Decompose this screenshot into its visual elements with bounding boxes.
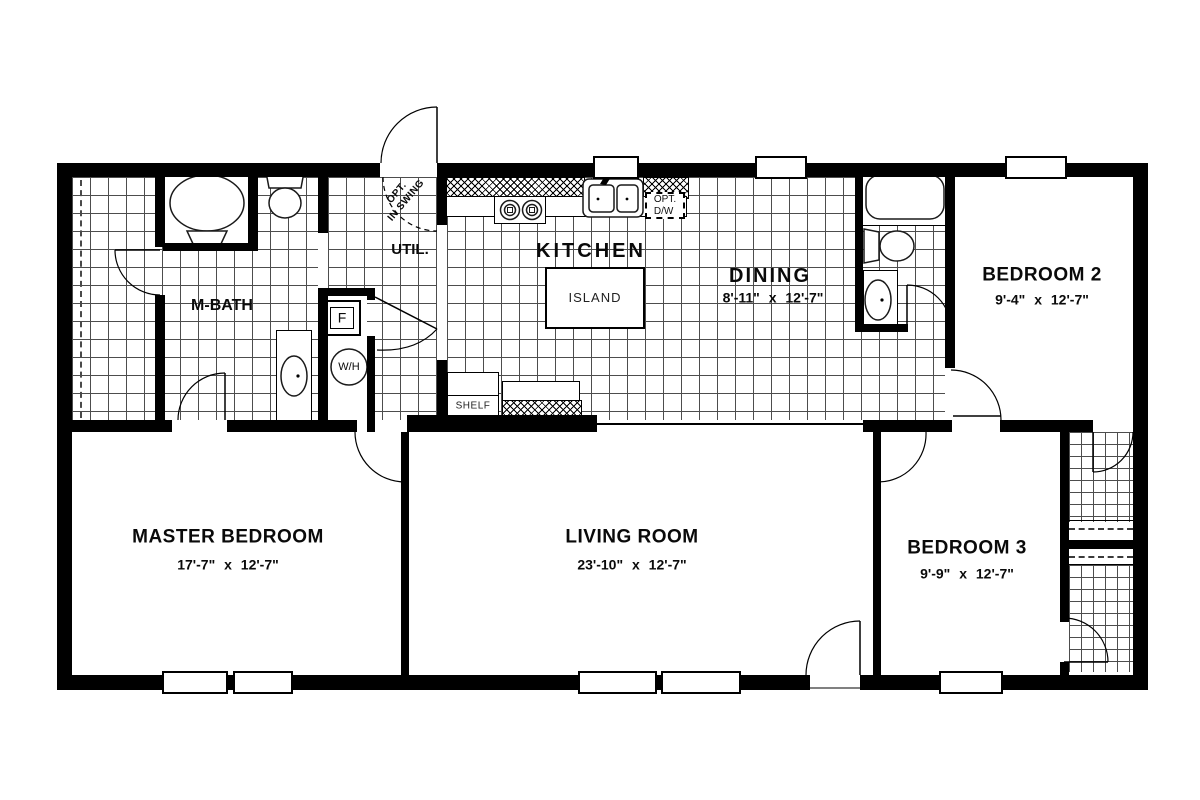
opt-dishwasher-box: OPT. D/W (645, 192, 685, 219)
room-label-dining: DINING (729, 265, 811, 287)
floor-closet-top (1069, 432, 1133, 522)
wall-interior (367, 336, 375, 432)
wall-interior (163, 243, 258, 251)
furnace-label: F (338, 310, 347, 325)
shelf-unit-top (447, 372, 499, 396)
window (1005, 156, 1067, 179)
wall-interior (437, 360, 447, 432)
wall-exterior-right (1133, 163, 1148, 690)
closet-shelf-dashed (1069, 528, 1133, 530)
door-swing-entry (806, 621, 860, 688)
floor-closet-bottom (1069, 565, 1133, 672)
wall-interior (1060, 540, 1133, 549)
range-cooktop (494, 196, 546, 224)
window (593, 156, 639, 179)
wall-interior (407, 415, 597, 432)
opt-dw-label-line2: D/W (654, 206, 676, 218)
floor-plan: OPT. D/W (0, 0, 1200, 800)
wall-interior (437, 163, 447, 225)
wall-interior (873, 432, 881, 675)
island-label: ISLAND (569, 291, 622, 305)
room-label-utility: UTIL. (391, 242, 429, 259)
wall-interior (863, 420, 952, 432)
mbath-vanity (276, 330, 312, 422)
wall-interior (1000, 420, 1093, 432)
shelf-label: SHELF (456, 401, 491, 412)
bath2-tub-platform (863, 170, 945, 226)
wall-exterior-top (57, 163, 380, 177)
bath2-vanity (863, 270, 898, 332)
opt-dw-label-line1: OPT. (654, 194, 676, 206)
wall-interior (227, 420, 357, 432)
wall-interior (155, 163, 165, 247)
wall-interior (401, 432, 409, 675)
door-swing-bedroom3 (878, 432, 926, 482)
window (755, 156, 807, 179)
room-dims-dining: 8'-11" x 12'-7" (723, 290, 824, 305)
room-dims-bedroom2: 9'-4" x 12'-7" (995, 292, 1089, 307)
wall-interior (945, 163, 955, 368)
tub-alcove (163, 168, 248, 245)
closet-shelf-edge (1069, 564, 1133, 565)
door-swing-master-bedroom (355, 432, 405, 482)
kitchen-south-counter (502, 381, 580, 401)
room-label-bedroom3: BEDROOM 3 (907, 539, 1027, 560)
closet-shelf-edge (1069, 520, 1133, 521)
door-swing-bedroom2 (951, 370, 1001, 420)
walkin-closet-rod-line (80, 180, 82, 418)
wall-interior (367, 288, 375, 300)
room-label-bedroom2: BEDROOM 2 (982, 266, 1102, 287)
wall-interior (855, 163, 863, 332)
room-dims-living-room: 23'-10" x 12'-7" (577, 557, 686, 572)
wall-interior (1060, 432, 1069, 622)
window (233, 671, 293, 694)
water-heater-label: W/H (338, 361, 359, 373)
wall-interior (318, 288, 328, 432)
window (162, 671, 228, 694)
floor-edge-open (597, 423, 863, 425)
wall-interior (1060, 662, 1069, 675)
window (939, 671, 1003, 694)
wall-interior (248, 163, 258, 250)
wall-interior (863, 324, 908, 332)
room-label-master-bedroom: MASTER BEDROOM (132, 528, 324, 549)
wall-interior (155, 295, 165, 432)
room-dims-bedroom3: 9'-9" x 12'-7" (920, 566, 1014, 581)
closet-shelf-dashed (1069, 556, 1133, 558)
room-label-living-room: LIVING ROOM (565, 528, 698, 549)
room-dims-master-bedroom: 17'-7" x 12'-7" (177, 557, 279, 572)
room-label-mbath: M-BATH (191, 297, 253, 315)
window (578, 671, 657, 694)
window (661, 671, 741, 694)
room-label-kitchen: KITCHEN (536, 240, 646, 262)
wall-exterior-bottom (860, 675, 1148, 690)
wall-interior (318, 163, 328, 233)
